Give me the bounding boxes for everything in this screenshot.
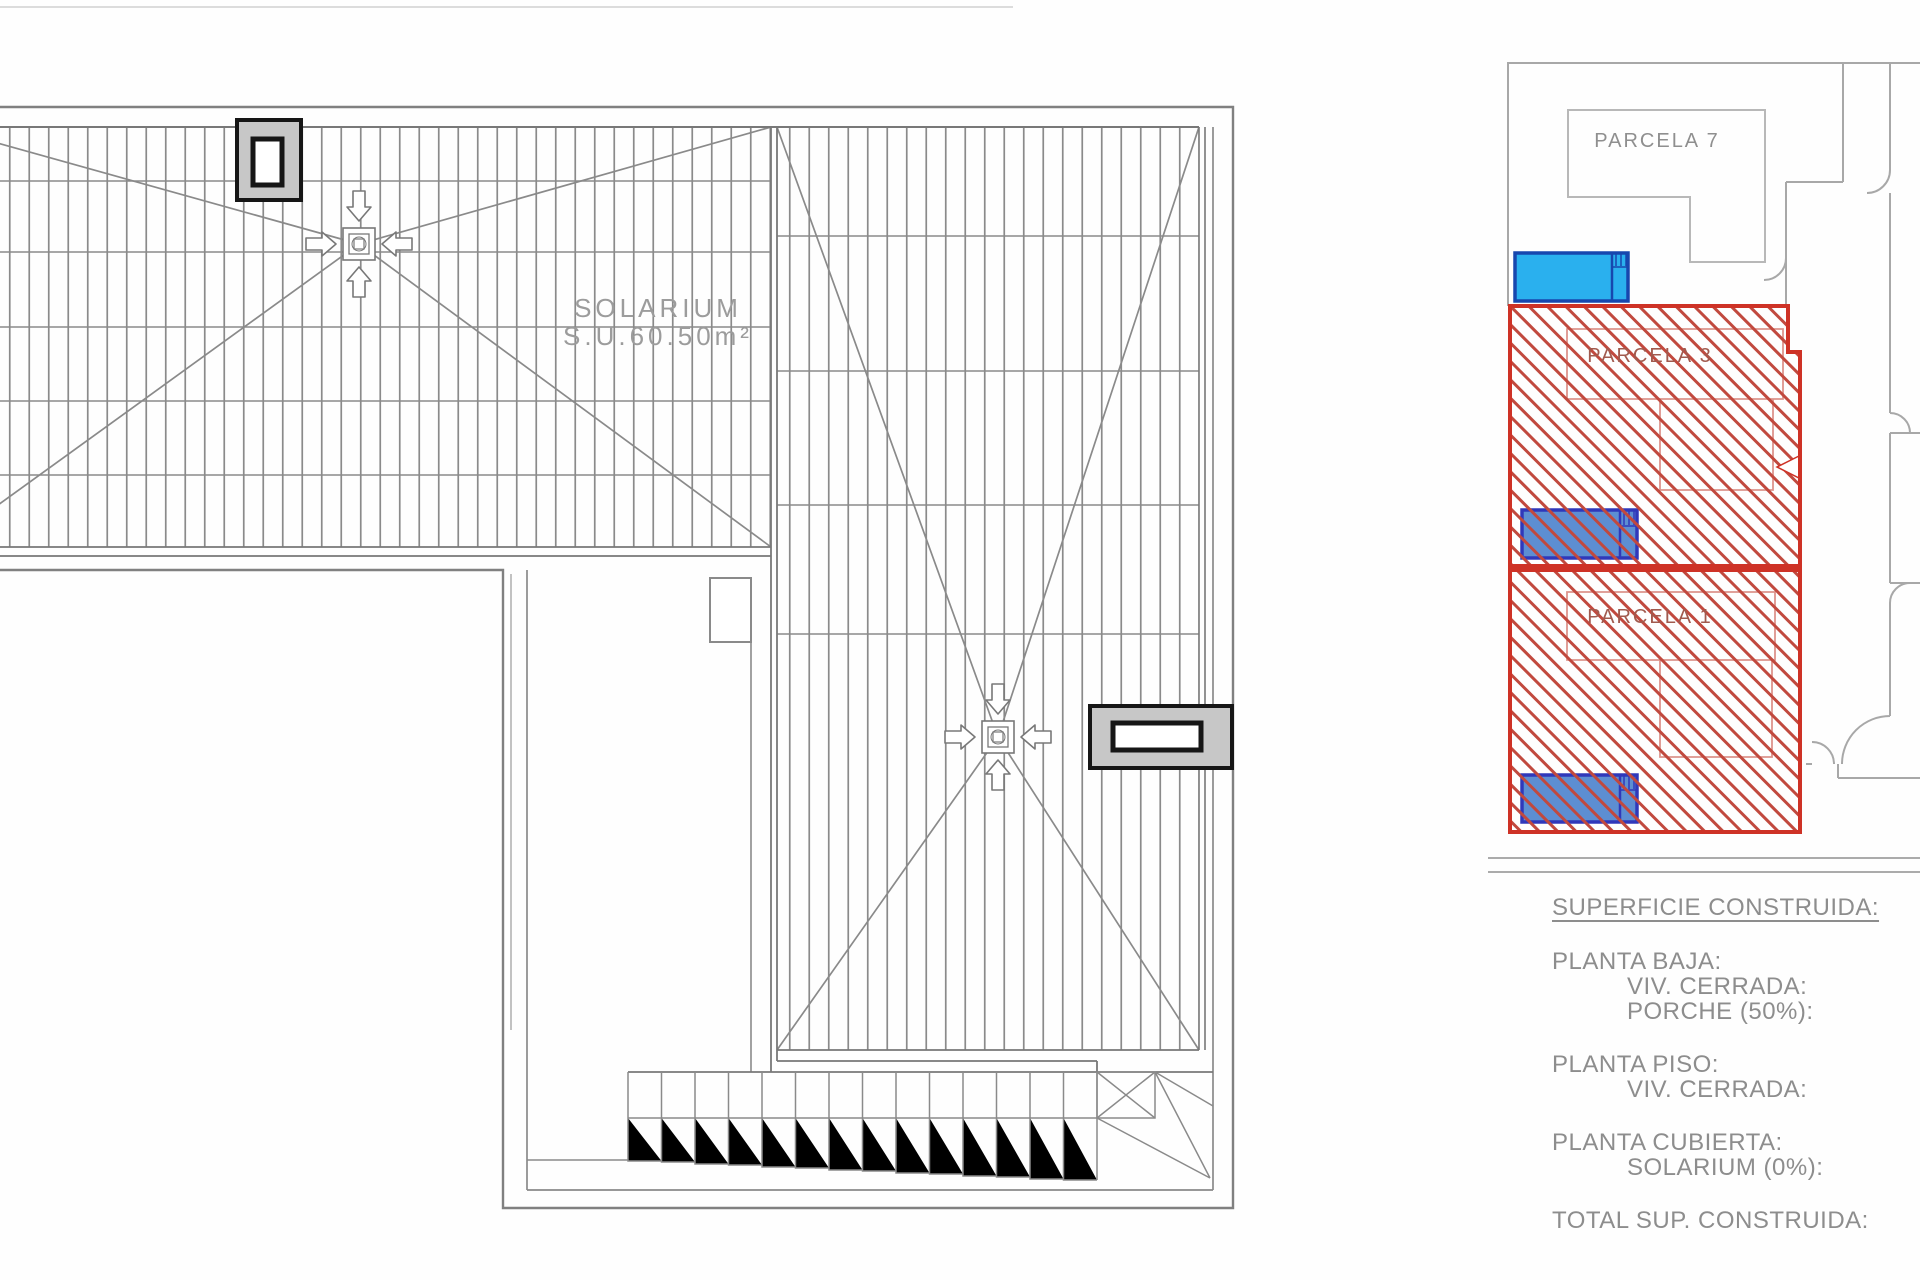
stair-treads-lower — [628, 1118, 1097, 1180]
band-divider — [771, 127, 777, 1072]
legend-heading: PLANTA PISO: — [1552, 1052, 1879, 1077]
solarium-label-line1: SOLARIUM — [563, 294, 753, 322]
legend-item: PORCHE (50%): — [1552, 999, 1879, 1024]
stair-treads-upper — [628, 1072, 1097, 1118]
right-band-hatch — [777, 127, 1199, 1050]
site-plan — [1488, 62, 1920, 872]
pool-icon — [1515, 253, 1628, 301]
solarium-label: SOLARIUM S.U.60.50m² — [563, 294, 753, 350]
chimney-icon — [1090, 706, 1232, 768]
right-band-bottom-border — [777, 1050, 1199, 1072]
legend-item: SOLARIUM (0%): — [1552, 1155, 1879, 1180]
legend-heading: PLANTA CUBIERTA: — [1552, 1130, 1879, 1155]
legend-heading: PLANTA BAJA: — [1552, 949, 1879, 974]
legend-title: SUPERFICIE CONSTRUIDA: — [1552, 894, 1879, 922]
legend-group-planta-cubierta: PLANTA CUBIERTA: SOLARIUM (0%): — [1552, 1130, 1879, 1180]
right-band-right-border — [1199, 127, 1205, 1050]
architectural-drawing-sheet: SOLARIUM S.U.60.50m² PARCELA 7 PARCELA 3… — [0, 0, 1920, 1280]
staircase — [628, 1072, 1213, 1180]
parcel-7-label: PARCELA 7 — [1594, 130, 1719, 153]
legend-item: VIV. CERRADA: — [1552, 974, 1879, 999]
chimney-icon — [237, 120, 301, 200]
built-area-legend: SUPERFICIE CONSTRUIDA: PLANTA BAJA: VIV.… — [1552, 894, 1879, 1233]
legend-group-planta-piso: PLANTA PISO: VIV. CERRADA: — [1552, 1052, 1879, 1102]
ground-lines — [1488, 858, 1920, 872]
parcel-1-label: PARCELA 1 — [1587, 606, 1712, 629]
roof-vent-outline — [710, 578, 751, 642]
roof-plan — [0, 107, 1233, 1208]
drain-icon — [343, 228, 375, 260]
parcel-3-label: PARCELA 3 — [1587, 345, 1712, 368]
legend-total: TOTAL SUP. CONSTRUIDA: — [1552, 1208, 1879, 1233]
solarium-label-line2: S.U.60.50m² — [563, 322, 753, 350]
drain-icon — [982, 721, 1014, 753]
legend-item: VIV. CERRADA: — [1552, 1077, 1879, 1102]
top-band-bottom-border — [0, 547, 771, 556]
legend-group-planta-baja: PLANTA BAJA: VIV. CERRADA: PORCHE (50%): — [1552, 949, 1879, 1024]
